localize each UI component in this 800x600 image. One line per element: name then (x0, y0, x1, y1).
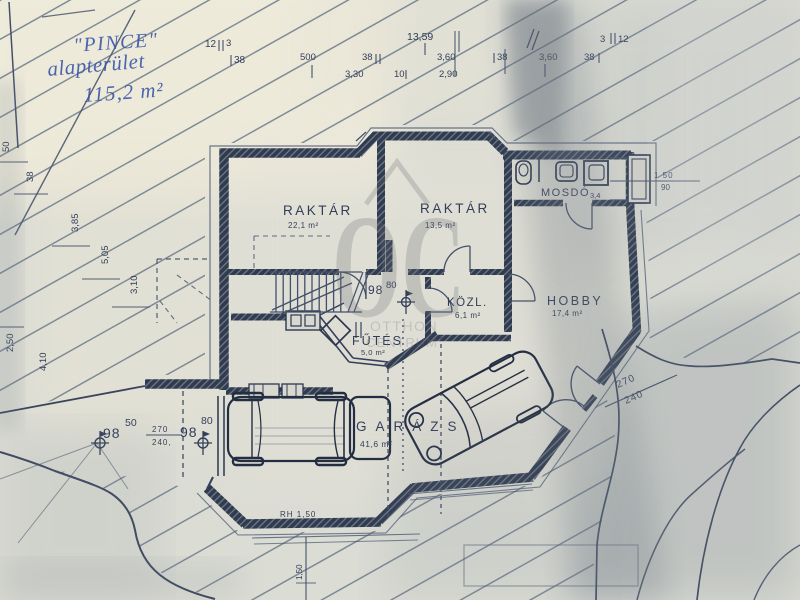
svg-text:38: 38 (362, 52, 373, 63)
svg-text:41,6 m²: 41,6 m² (360, 439, 392, 449)
svg-text:5,05: 5,05 (100, 246, 111, 265)
svg-text:500: 500 (300, 52, 316, 63)
svg-text:10: 10 (394, 69, 405, 80)
svg-text:98: 98 (180, 424, 198, 440)
svg-text:22,1 m²: 22,1 m² (288, 221, 319, 230)
svg-text:12: 12 (205, 39, 217, 50)
svg-text:80: 80 (201, 415, 213, 427)
svg-text:3: 3 (226, 38, 231, 49)
svg-text:50: 50 (125, 417, 137, 429)
svg-text:38: 38 (234, 55, 246, 66)
svg-text:OTTHON: OTTHON (370, 318, 438, 334)
svg-text:3,10: 3,10 (129, 276, 140, 295)
svg-text:RH 1,50: RH 1,50 (280, 510, 316, 519)
svg-text:3,30: 3,30 (345, 69, 364, 80)
svg-text:38: 38 (497, 52, 508, 63)
svg-text:4,10: 4,10 (38, 353, 49, 372)
svg-text:CENTRUM: CENTRUM (366, 335, 438, 350)
svg-text:1,50: 1,50 (295, 564, 304, 580)
svg-text:13,59: 13,59 (407, 31, 433, 43)
svg-text:3,60: 3,60 (437, 52, 456, 63)
svg-text:3,85: 3,85 (70, 214, 81, 233)
svg-text:38: 38 (25, 171, 36, 182)
